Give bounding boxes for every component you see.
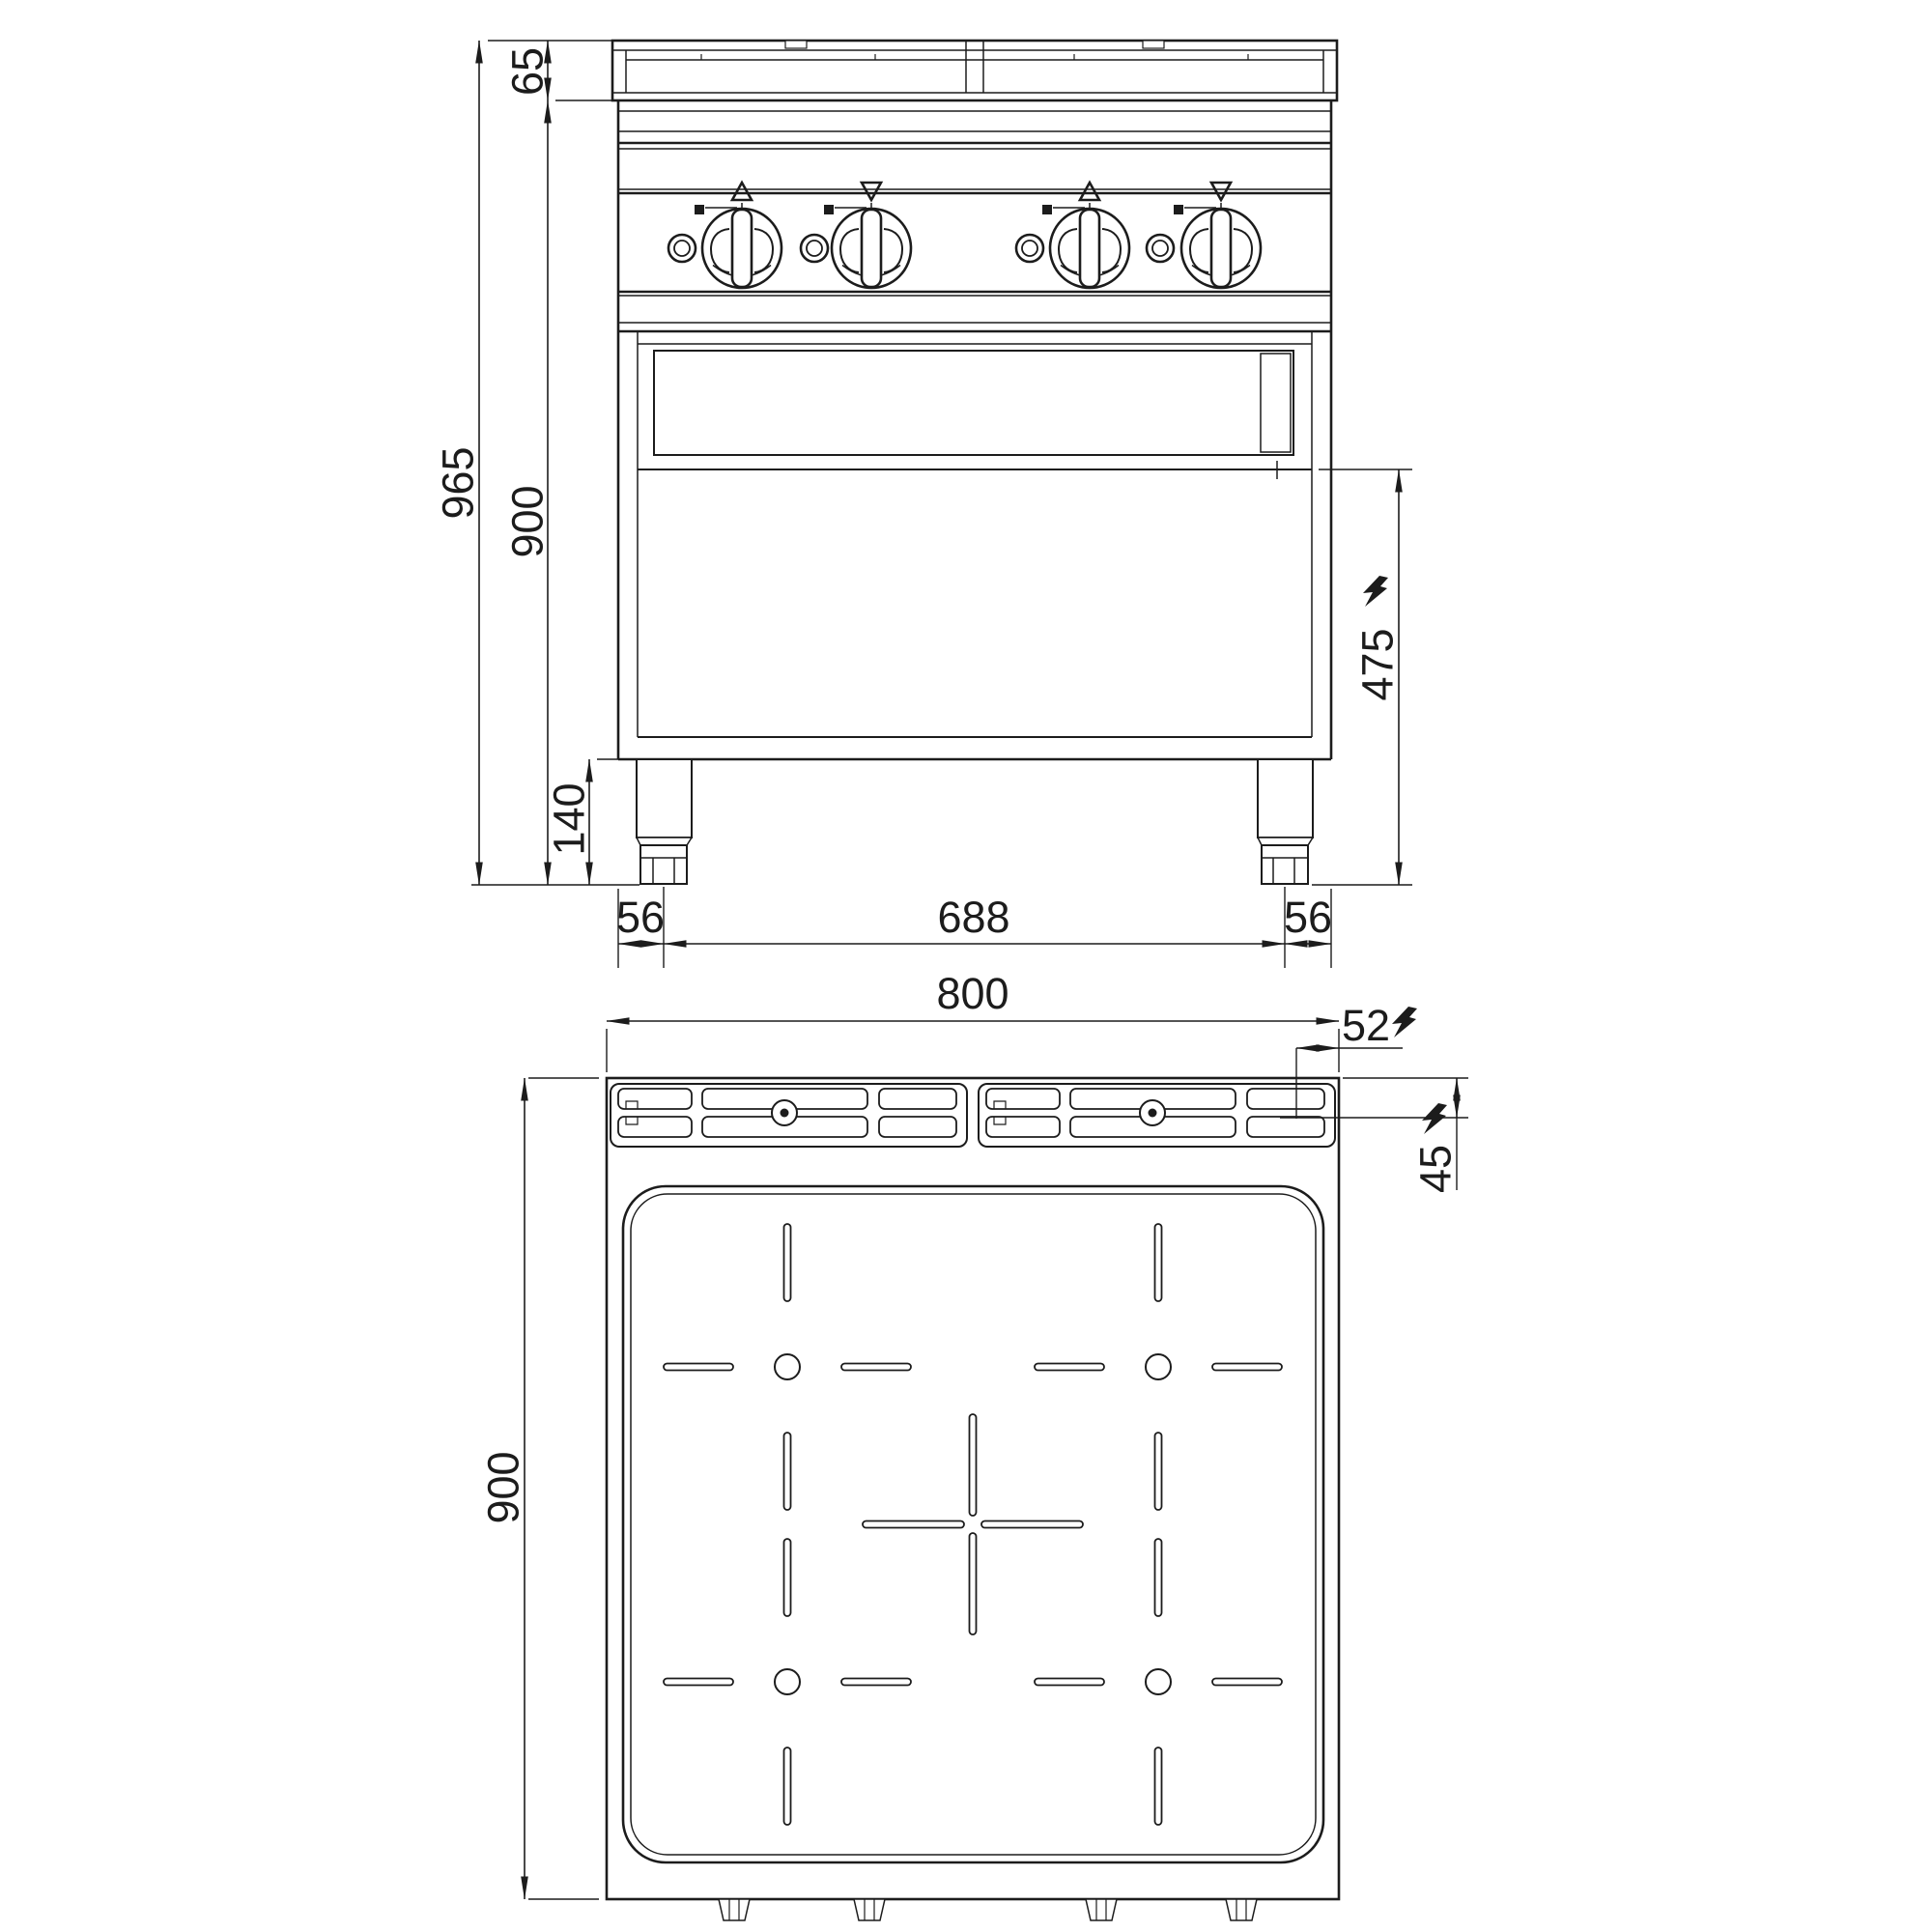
control-knob-1 — [695, 203, 781, 288]
worktop-profile — [618, 111, 1331, 193]
dim-label-electric-offset-back: 45 — [1411, 1145, 1461, 1193]
induction-range-dimension-drawing: 965 65 900 140 56 688 56 475 — [0, 0, 1932, 1932]
dim-label-depth: 900 — [479, 1451, 528, 1523]
dim-label-foot-inset-right: 56 — [1284, 893, 1332, 942]
control-knob-3 — [1042, 203, 1129, 288]
knob3-increase-marker — [1080, 183, 1099, 200]
vent-grille-left — [611, 1084, 967, 1147]
lightning-icon — [1363, 576, 1388, 607]
dim-label-worktop-height: 900 — [503, 485, 553, 557]
indicator-light-1 — [668, 235, 696, 262]
control-knob-2 — [824, 203, 911, 288]
control-knob-4 — [1174, 203, 1261, 288]
rear-feet-tabs — [719, 1899, 1257, 1920]
knob1-increase-marker — [732, 183, 752, 200]
top-view: 800 900 52 45 — [479, 969, 1469, 1920]
drawer-front — [654, 351, 1293, 455]
dim-label-width: 800 — [936, 969, 1009, 1018]
indicator-light-2 — [801, 235, 828, 262]
technical-drawing-page: 965 65 900 140 56 688 56 475 — [0, 0, 1932, 1932]
left-leg — [637, 759, 692, 884]
dim-label-leg-height: 140 — [545, 782, 594, 855]
control-panel — [618, 183, 1331, 331]
knob4-decrease-marker — [1211, 183, 1231, 200]
lightning-icon — [1392, 1007, 1417, 1037]
indicator-light-3 — [1016, 235, 1043, 262]
ceramic-glass-surface — [623, 1186, 1323, 1862]
base-cabinet — [618, 331, 1331, 759]
right-leg — [1258, 759, 1313, 884]
dim-label-foot-inset-left: 56 — [616, 893, 665, 942]
lightning-icon — [1422, 1103, 1447, 1134]
back-rail — [612, 41, 1337, 100]
dim-label-electric-height: 475 — [1353, 628, 1403, 700]
dim-label-backsplash-height: 65 — [503, 47, 553, 96]
knob2-decrease-marker — [862, 183, 881, 200]
dim-label-total-height: 965 — [434, 446, 483, 519]
vent-grille-right — [979, 1084, 1335, 1147]
front-view: 965 65 900 140 56 688 56 475 — [434, 41, 1413, 968]
dim-label-foot-spacing: 688 — [937, 893, 1009, 942]
dim-label-electric-offset-right: 52 — [1342, 1001, 1390, 1050]
indicator-light-4 — [1147, 235, 1174, 262]
